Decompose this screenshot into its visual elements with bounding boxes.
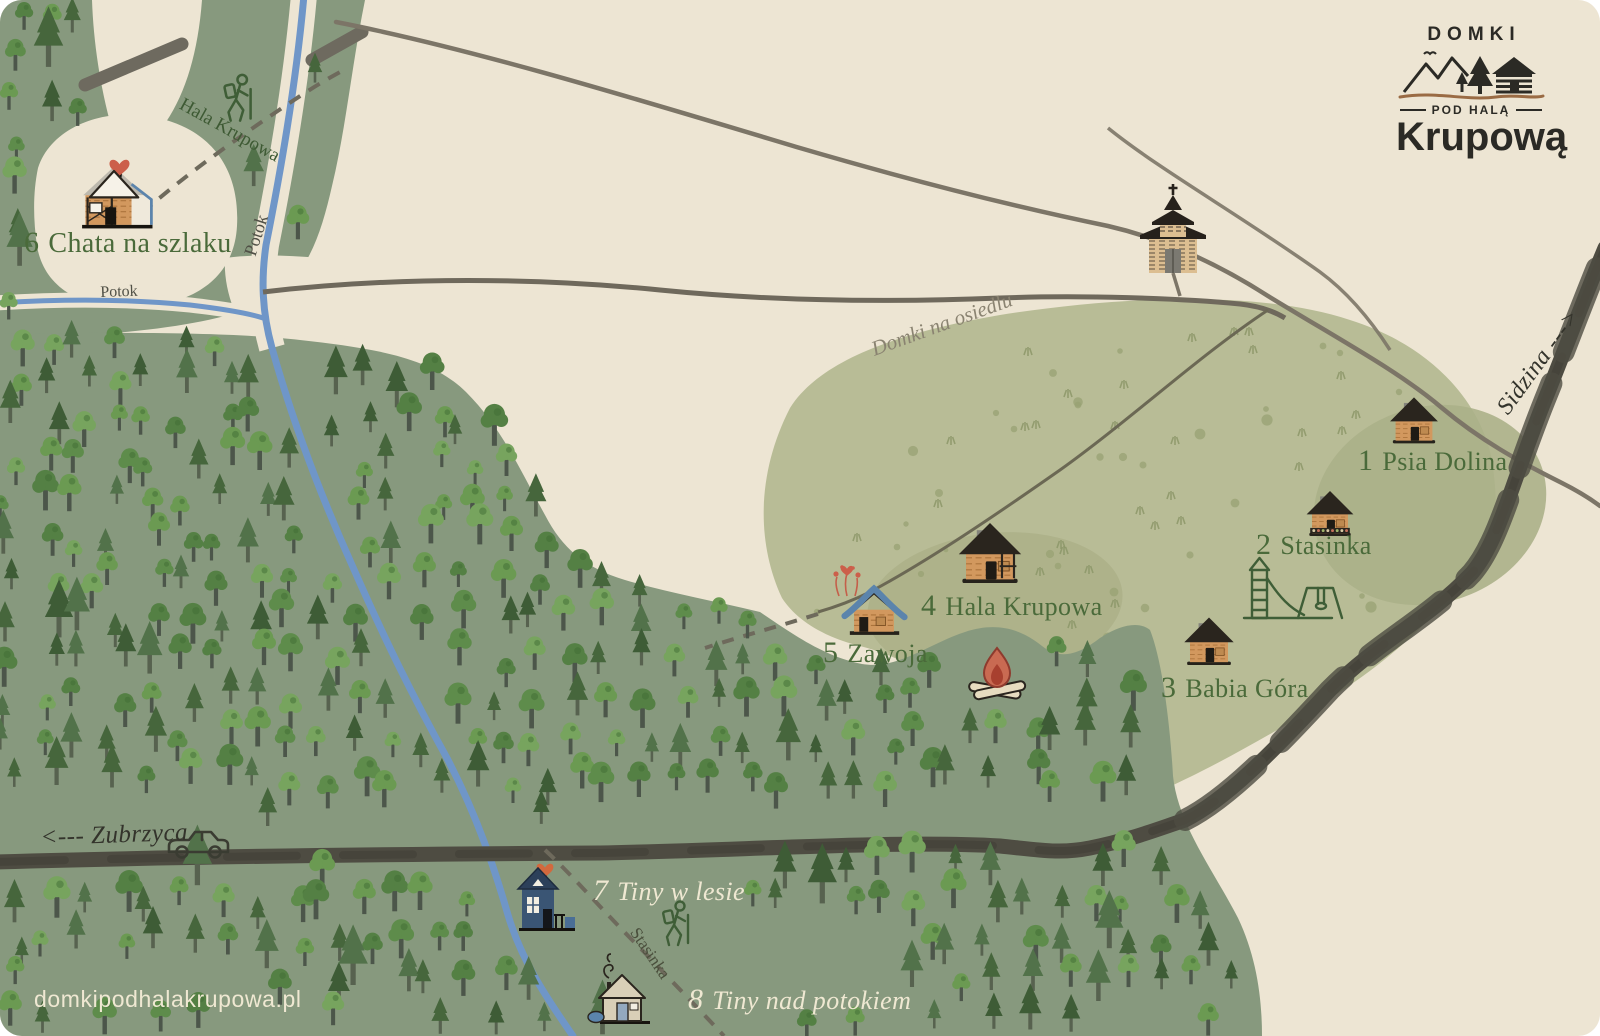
logo-ground-icon — [1400, 95, 1543, 98]
logo-mountains-icon — [1404, 58, 1468, 92]
logo-text-domki: DOMKI — [1402, 24, 1546, 46]
logo-illustration — [1396, 46, 1546, 102]
label-babia-gora[interactable]: 3Babia Góra — [1161, 671, 1309, 705]
label-stream-potok-horizontal: Potok — [100, 283, 138, 302]
label-chata-na-szlaku[interactable]: 6Chata na szlaku — [24, 226, 232, 260]
brand-logo: DOMKI POD HALĄ Krupową — [1396, 24, 1546, 157]
label-tiny-w-lesie[interactable]: 7Tiny w lesie — [593, 874, 745, 908]
website-link[interactable]: domkipodhalakrupowa.pl — [34, 986, 302, 1013]
logo-text-krupowa: Krupową — [1396, 117, 1546, 157]
label-stasinka[interactable]: 2Stasinka — [1256, 528, 1372, 562]
label-zawoja[interactable]: 5Zawoja — [823, 636, 928, 670]
label-psia-dolina[interactable]: 1Psia Dolina — [1358, 444, 1507, 478]
label-road-zubrzyca: <--- Zubrzyca — [40, 819, 189, 852]
logo-cabin-icon — [1492, 57, 1536, 94]
label-tiny-nad-potokiem[interactable]: 8Tiny nad potokiem — [688, 983, 911, 1017]
logo-pine-icon — [1456, 56, 1493, 94]
label-hala-krupowa[interactable]: 4Hala Krupowa — [921, 589, 1103, 623]
map-illustration — [0, 0, 1600, 1036]
logo-bird-icon — [1424, 52, 1436, 54]
resort-map: 1Psia Dolina 2Stasinka 3Babia Góra 4Hala… — [0, 0, 1600, 1036]
